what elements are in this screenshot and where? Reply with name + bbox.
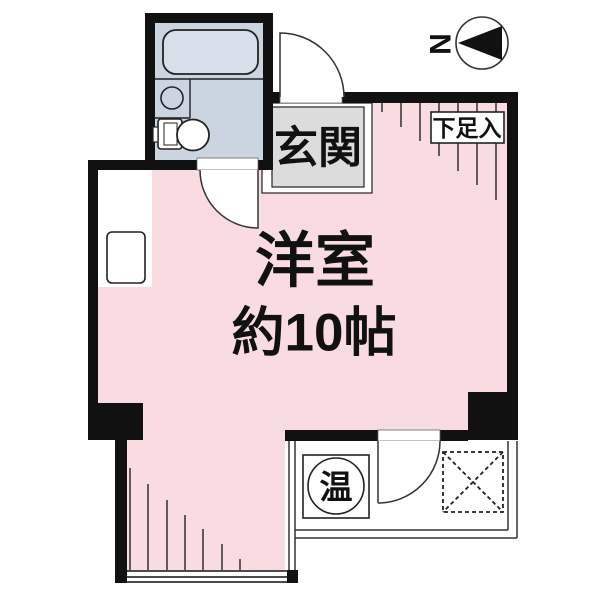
toilet-bowl	[177, 120, 209, 151]
left-wall-lower	[115, 440, 127, 583]
balcony-door-opening	[378, 430, 440, 441]
floor-plan: 下足入 玄関 洋室 約10帖 温 N	[0, 0, 600, 600]
shoe-storage-label: 下足入	[433, 115, 502, 141]
right-corner-block	[468, 392, 518, 440]
toilet-valve	[153, 127, 158, 142]
room-size-label: 約10帖	[232, 304, 397, 363]
top-wall-stub	[271, 92, 280, 103]
left-top-wall	[88, 160, 157, 170]
room-name-label: 洋室	[255, 228, 375, 295]
right-wall	[507, 92, 518, 392]
left-step-block	[88, 403, 143, 440]
kitchen-sink	[107, 232, 145, 283]
bathtub	[163, 30, 258, 74]
window-cap-right	[287, 570, 298, 583]
bathroom-door-opening	[197, 158, 258, 170]
entrance-label: 玄関	[274, 124, 362, 173]
bottom-wall-right-segment	[440, 430, 468, 441]
bottom-wall-left-segment	[285, 430, 378, 441]
left-wall-upper	[88, 160, 98, 403]
top-wall	[342, 92, 518, 103]
compass-north-label: N	[425, 33, 458, 55]
water-heater-label: 温	[320, 469, 353, 506]
